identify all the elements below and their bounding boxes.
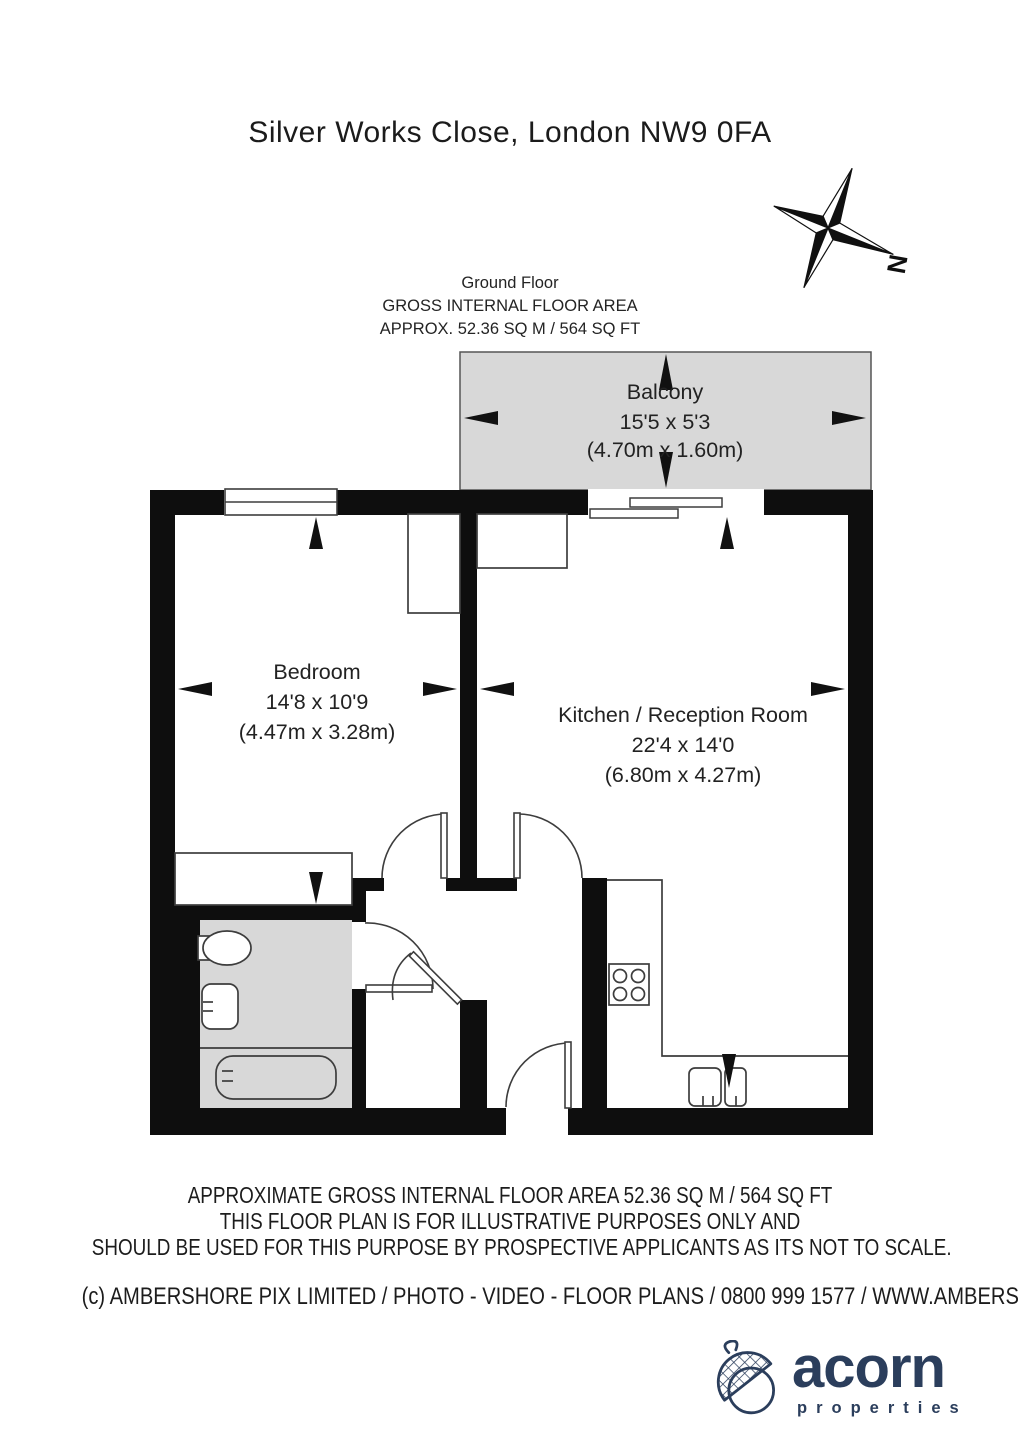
bedroom-size-metric: (4.47m x 3.28m) xyxy=(239,720,396,744)
floorplan-page: Silver Works Close, London NW9 0FA Groun… xyxy=(0,0,1020,1441)
balcony-size-imperial: 15'5 x 5'3 xyxy=(620,410,711,434)
bedroom-arrow-up xyxy=(309,517,323,549)
kitchen-arrow-right xyxy=(811,682,845,696)
kitchen-arrow-left xyxy=(480,682,514,696)
bedroom-arrow-left xyxy=(178,682,212,696)
hob-icon xyxy=(609,964,649,1005)
kitchen-size-imperial: 22'4 x 14'0 xyxy=(632,733,735,757)
bedroom-door xyxy=(382,813,447,878)
kitchen-unit xyxy=(477,514,567,568)
kitchen-door xyxy=(514,813,582,878)
disclaimer-line-2: THIS FLOOR PLAN IS FOR ILLUSTRATIVE PURP… xyxy=(92,1208,928,1234)
logo-brand: acorn xyxy=(792,1340,968,1396)
basin-icon xyxy=(202,984,238,1029)
agency-logo: acorn properties xyxy=(712,1340,1002,1435)
logo-tagline: properties xyxy=(792,1399,968,1418)
bedroom-wardrobe xyxy=(175,853,352,905)
bathroom-door xyxy=(365,923,433,992)
copyright-text: (c) AMBERSHORE PIX LIMITED / PHOTO - VID… xyxy=(82,1283,939,1311)
compass-north-label: N xyxy=(881,252,914,276)
compass-icon: N xyxy=(750,147,917,314)
kitchen-sink-icon xyxy=(689,1068,746,1106)
bedroom-label: Bedroom xyxy=(273,660,360,684)
bedroom-arrow-right xyxy=(423,682,457,696)
kitchen-size-metric: (6.80m x 4.27m) xyxy=(605,763,762,787)
balcony-size-metric: (4.70m x 1.60m) xyxy=(587,438,744,462)
disclaimer-line-1: APPROXIMATE GROSS INTERNAL FLOOR AREA 52… xyxy=(92,1182,928,1208)
kitchen-arrow-up xyxy=(720,517,734,549)
disclaimer-text: APPROXIMATE GROSS INTERNAL FLOOR AREA 52… xyxy=(92,1182,928,1260)
bedroom-cupboard xyxy=(408,514,460,613)
entrance-door xyxy=(506,1042,571,1108)
acorn-icon xyxy=(712,1340,782,1424)
kitchen-label: Kitchen / Reception Room xyxy=(558,703,808,727)
toilet-icon xyxy=(198,931,251,965)
balcony-label: Balcony xyxy=(627,380,704,404)
bedroom-window xyxy=(225,489,337,515)
bedroom-size-imperial: 14'8 x 10'9 xyxy=(266,690,369,714)
disclaimer-line-3: SHOULD BE USED FOR THIS PURPOSE BY PROSP… xyxy=(92,1234,928,1260)
